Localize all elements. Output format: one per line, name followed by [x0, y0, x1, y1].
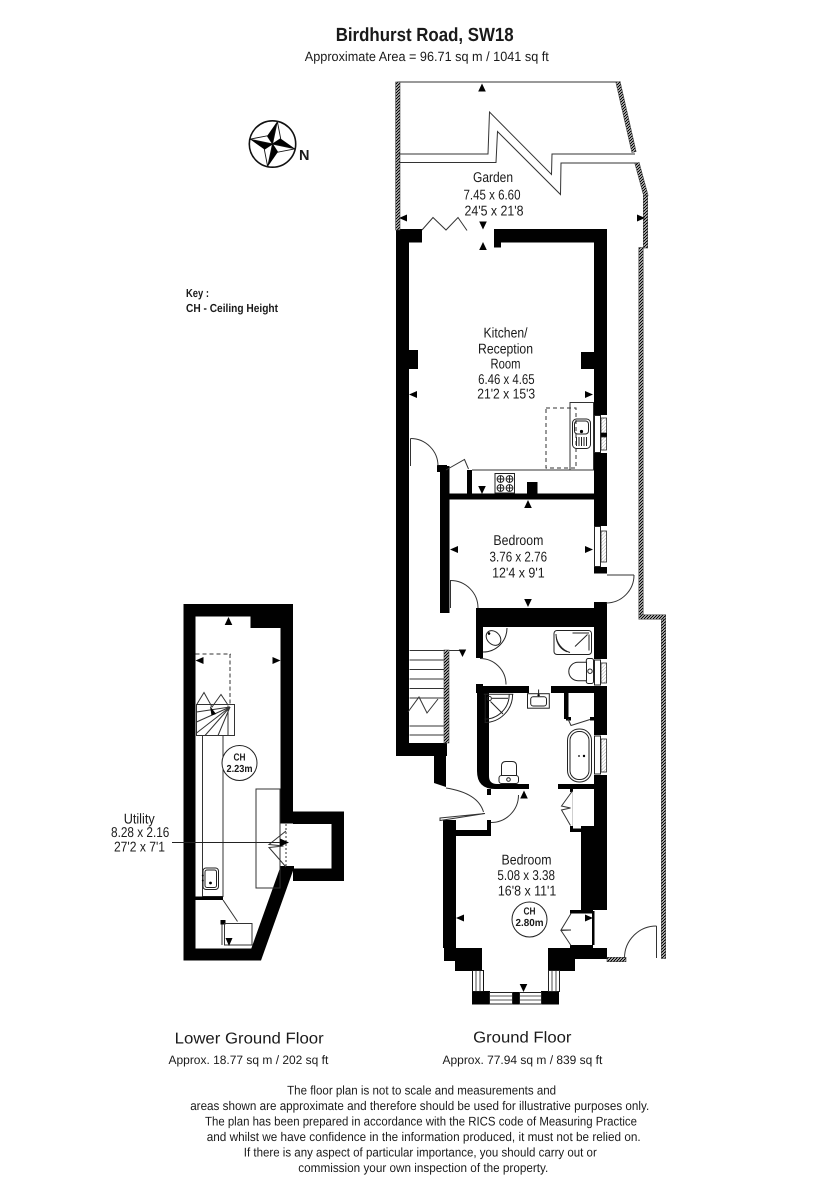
- svg-text:Birdhurst Road, SW18: Birdhurst Road, SW18: [336, 25, 514, 46]
- svg-text:N: N: [299, 148, 309, 164]
- svg-text:Kitchen/: Kitchen/: [484, 326, 528, 342]
- svg-text:2.23m: 2.23m: [227, 764, 253, 775]
- svg-text:Approximate Area = 96.71 sq m: Approximate Area = 96.71 sq m / 1041 sq …: [305, 49, 549, 64]
- svg-text:5.08 x 3.38: 5.08 x 3.38: [497, 868, 555, 884]
- svg-text:The floor plan is not to scale: The floor plan is not to scale and measu…: [287, 1084, 556, 1098]
- svg-text:CH: CH: [524, 907, 536, 918]
- svg-text:Approx. 18.77 sq m / 202 sq ft: Approx. 18.77 sq m / 202 sq ft: [169, 1053, 329, 1067]
- svg-text:Approx. 77.94 sq m / 839 sq ft: Approx. 77.94 sq m / 839 sq ft: [443, 1053, 603, 1067]
- svg-text:If there is any aspect of part: If there is any aspect of particular imp…: [244, 1145, 597, 1159]
- svg-text:CH - Ceiling Height: CH - Ceiling Height: [186, 302, 278, 315]
- svg-text:and whilst we have confidence: and whilst we have confidence in the inf…: [207, 1130, 641, 1144]
- svg-text:Bedroom: Bedroom: [493, 533, 543, 549]
- svg-text:Ground Floor: Ground Floor: [473, 1030, 571, 1047]
- svg-text:Reception: Reception: [478, 342, 533, 358]
- svg-text:16'8 x 11'1: 16'8 x 11'1: [498, 884, 556, 900]
- svg-text:commission your own inspection: commission your own inspection of the pr…: [298, 1161, 548, 1175]
- svg-text:3.76 x 2.76: 3.76 x 2.76: [490, 550, 548, 566]
- svg-text:CH: CH: [234, 753, 246, 764]
- svg-text:24'5 x 21'8: 24'5 x 21'8: [465, 204, 524, 220]
- svg-text:7.45 x 6.60: 7.45 x 6.60: [464, 188, 521, 204]
- svg-text:27'2 x 7'1: 27'2 x 7'1: [114, 840, 165, 856]
- svg-text:Lower Ground Floor: Lower Ground Floor: [175, 1031, 324, 1048]
- svg-text:Garden: Garden: [473, 170, 513, 186]
- svg-text:21'2 x 15'3: 21'2 x 15'3: [477, 387, 535, 403]
- svg-text:areas shown are approximate an: areas shown are approximate and therefor…: [190, 1099, 649, 1113]
- svg-text:Bedroom: Bedroom: [502, 853, 552, 869]
- svg-text:12'4 x 9'1: 12'4 x 9'1: [492, 566, 545, 582]
- svg-text:Room: Room: [491, 357, 521, 373]
- svg-text:The plan has been prepared in: The plan has been prepared in accordance…: [205, 1115, 637, 1129]
- svg-text:2.80m: 2.80m: [516, 918, 544, 929]
- svg-text:Key :: Key :: [186, 287, 209, 300]
